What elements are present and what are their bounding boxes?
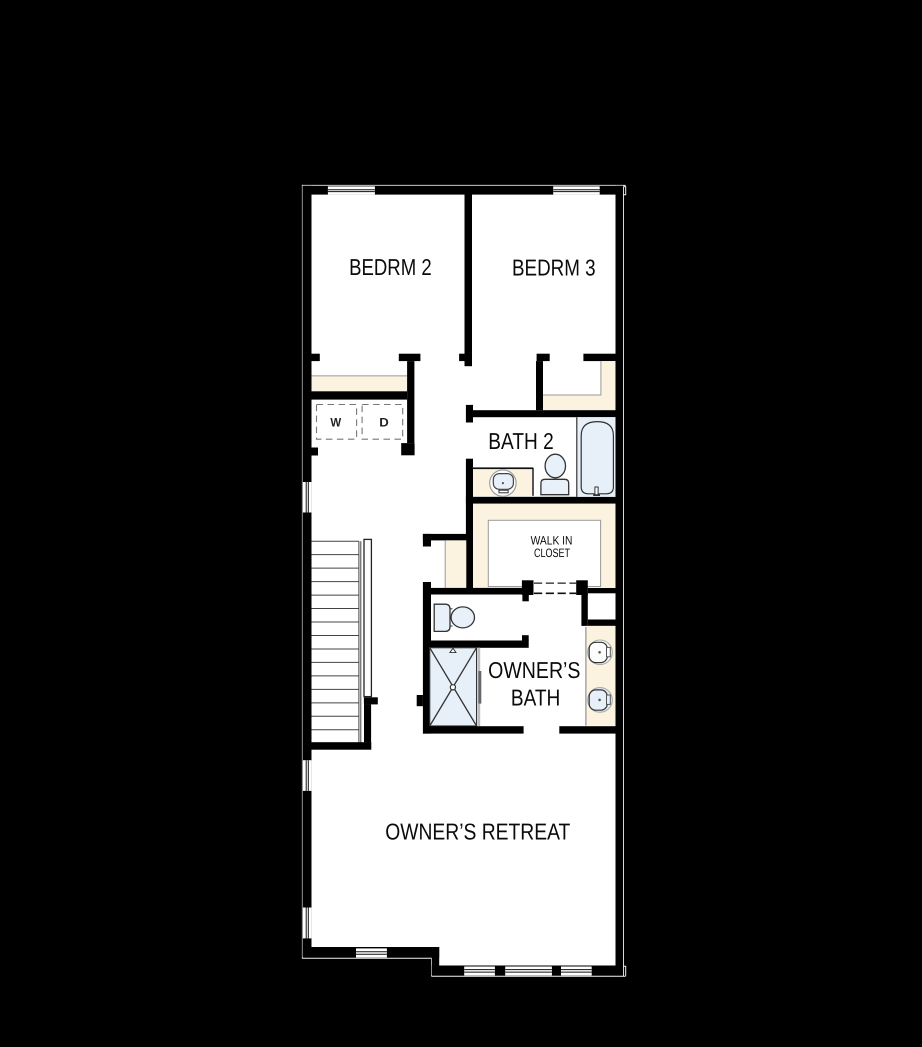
svg-text:OWNER’S RETREAT: OWNER’S RETREAT <box>385 819 570 845</box>
svg-text:BEDRM 3: BEDRM 3 <box>512 255 596 281</box>
svg-text:OWNER’S: OWNER’S <box>488 657 580 683</box>
svg-text:BATH 2: BATH 2 <box>488 428 553 454</box>
svg-text:WALK IN: WALK IN <box>531 533 573 547</box>
svg-text:W: W <box>330 415 341 429</box>
svg-text:CLOSET: CLOSET <box>534 546 571 560</box>
svg-text:BEDRM 2: BEDRM 2 <box>349 254 432 280</box>
svg-text:BATH: BATH <box>511 684 561 710</box>
svg-text:D: D <box>379 415 389 429</box>
